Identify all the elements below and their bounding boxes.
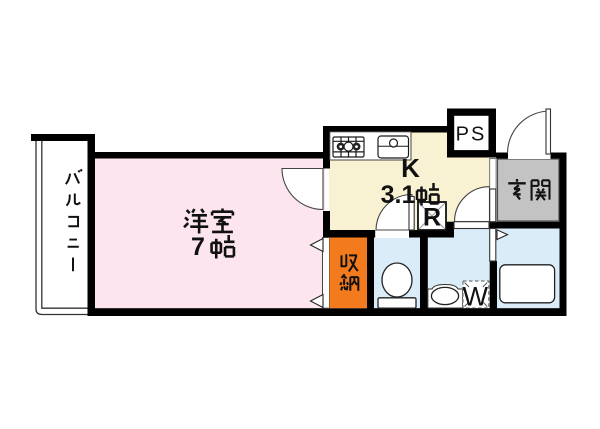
svg-text:R: R	[423, 204, 441, 232]
svg-text:PS: PS	[456, 124, 487, 146]
svg-text:7: 7	[191, 233, 205, 261]
svg-text:K: K	[401, 153, 420, 183]
svg-text:W: W	[463, 282, 489, 312]
svg-text:3.1: 3.1	[381, 181, 416, 209]
